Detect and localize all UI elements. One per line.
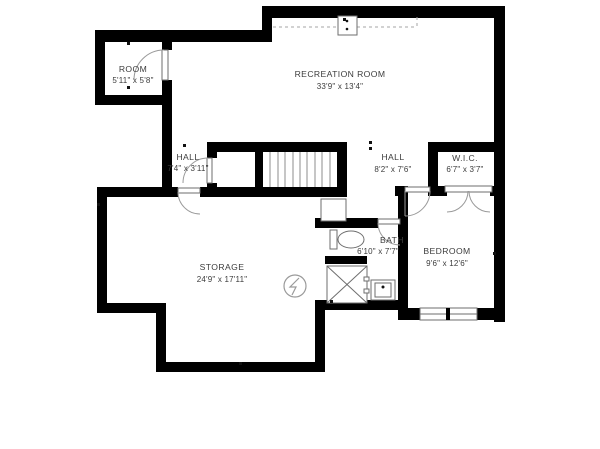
door-swing-arc	[405, 191, 430, 216]
wall-segment	[207, 183, 217, 187]
room-label-room: ROOM	[119, 64, 147, 74]
room-dims-storage: 24'9" x 17'11"	[197, 275, 248, 284]
room-dims-bedroom: 9'6" x 12'6"	[426, 259, 468, 268]
wall-segment	[428, 142, 505, 152]
wall-segment	[207, 142, 347, 152]
wall-segment	[97, 187, 166, 197]
wall-segment	[262, 6, 272, 42]
room-label-hall-west: HALL	[176, 152, 199, 162]
room-dims-bath: 6'10" x 7'7"	[357, 247, 399, 256]
support-post-icon	[338, 16, 357, 35]
wall-segment	[430, 186, 447, 196]
room-label-hall-center: HALL	[381, 152, 404, 162]
wall-segment	[95, 30, 105, 105]
wall-segment	[477, 308, 505, 320]
wall-segment	[255, 152, 263, 187]
room-label-storage: STORAGE	[200, 262, 245, 272]
window	[420, 308, 477, 320]
room-dims-hall-west: 7'4" x 3'11"	[167, 164, 208, 173]
room-dims-wic: 6'7" x 3'7"	[446, 165, 483, 174]
shower-icon	[327, 266, 369, 303]
wall-segment	[162, 187, 178, 197]
window-mullion	[446, 308, 450, 320]
room-label-bedroom: BEDROOM	[423, 246, 470, 256]
wall-segment	[262, 6, 505, 18]
wall-segment	[325, 256, 367, 264]
electrical-panel-icon	[284, 275, 306, 297]
wall-segment	[398, 186, 408, 310]
wall-segment	[207, 152, 217, 158]
post-marker-dot	[346, 20, 349, 23]
wall-segment	[200, 187, 347, 197]
door-leaf	[178, 188, 200, 193]
room-dims-room: 5'11" x 5'8"	[112, 76, 153, 85]
floor-plan: ROOM 5'11" x 5'8" RECREATION ROOM 33'9" …	[0, 0, 600, 449]
room-label-recreation-room: RECREATION ROOM	[295, 69, 386, 79]
door-swing-arc	[178, 192, 200, 214]
wall-segment	[156, 303, 166, 372]
room-dims-hall-center: 8'2" x 7'6"	[374, 165, 411, 174]
room-dims-recreation-room: 33'9" x 13'4"	[317, 82, 363, 91]
door-leaf	[378, 219, 400, 224]
room-label-bath: BATH	[380, 235, 404, 245]
chase-box	[321, 199, 346, 221]
wall-segment	[95, 95, 172, 105]
post-marker-dot	[346, 28, 349, 31]
floor-plan-drawing: ROOM 5'11" x 5'8" RECREATION ROOM 33'9" …	[0, 0, 600, 449]
room-label-wic: W.I.C.	[452, 153, 478, 163]
stairs	[270, 152, 330, 187]
door-header	[405, 187, 430, 192]
door-swing-arc	[469, 191, 490, 212]
door-leaf	[162, 50, 168, 80]
wall-segment	[162, 30, 172, 50]
wall-segment	[95, 30, 272, 42]
wall-segment	[337, 142, 347, 197]
sink-icon	[371, 280, 395, 300]
door-swing-arc	[447, 191, 468, 212]
wall-segment	[315, 300, 325, 372]
wall-segment	[97, 303, 166, 313]
wall-segment	[494, 6, 505, 322]
